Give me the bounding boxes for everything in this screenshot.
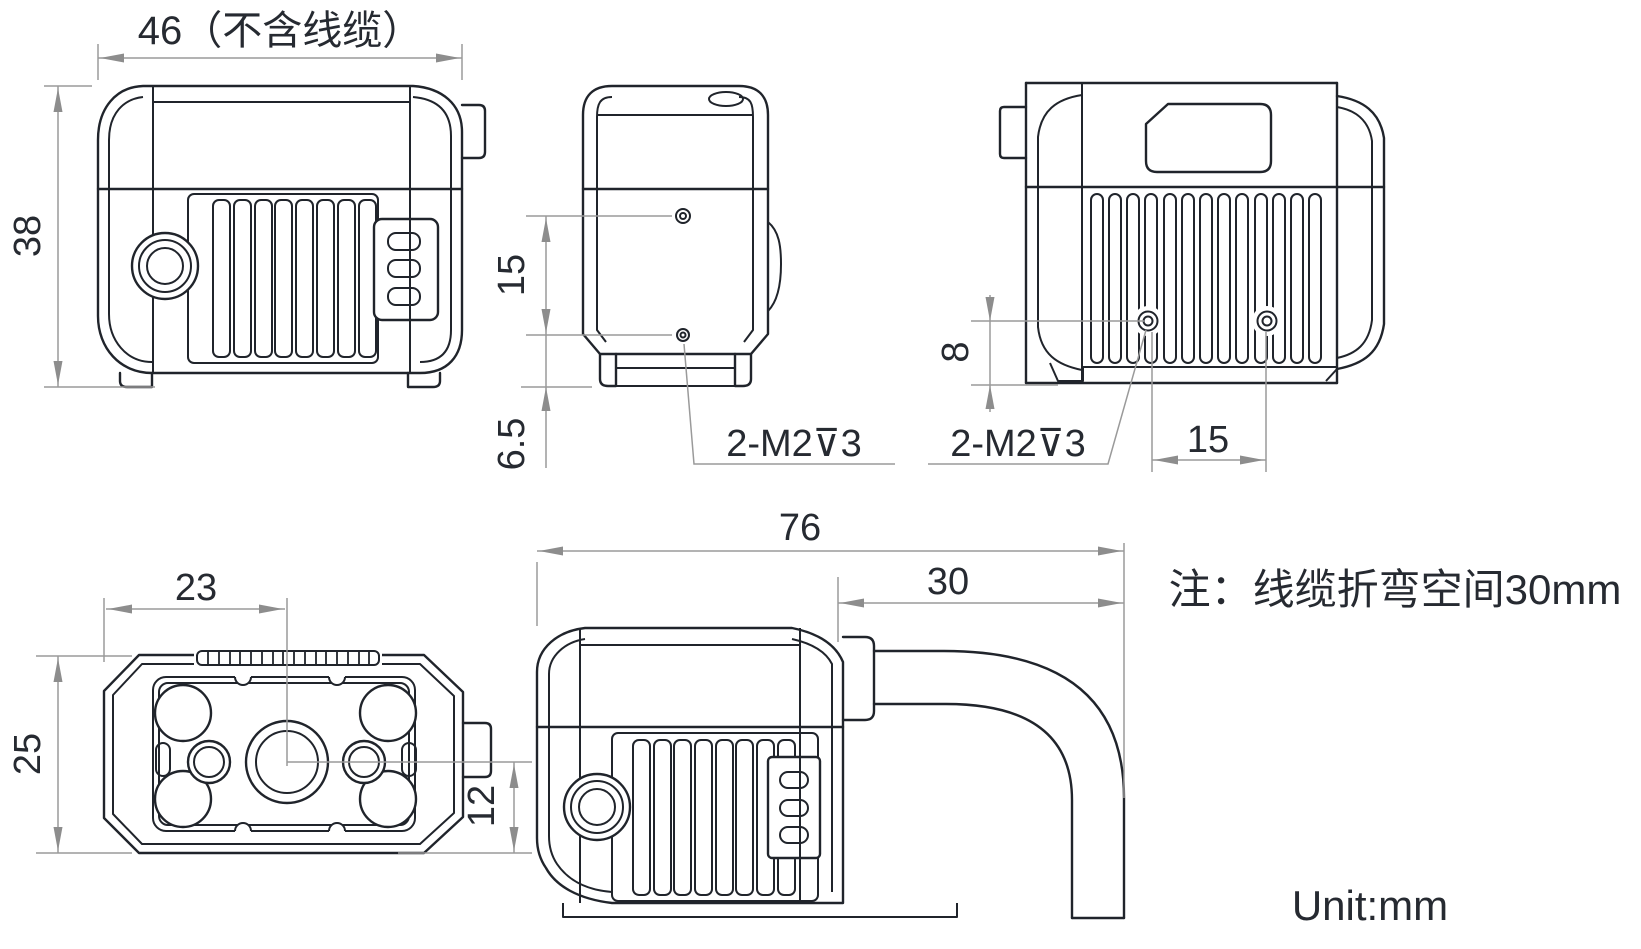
- heatsink-fins: [213, 200, 376, 357]
- dimension-drawing-page: 46（不含线缆） 38 15 6.5 2-M2⊽3 8 2-M2⊽3: [0, 0, 1641, 949]
- foot: [600, 354, 616, 386]
- cable-gland: [843, 637, 874, 720]
- heatsink-block: [188, 194, 378, 363]
- dim-rear-hole-spacing: 15: [1187, 419, 1229, 461]
- dim-height-38: 38: [7, 215, 49, 257]
- heatsink-fins: [1091, 194, 1321, 363]
- thread-callout-side: 2-M2⊽3: [726, 423, 862, 465]
- view-side-profile: [583, 86, 781, 386]
- lens-bulge: [768, 222, 781, 311]
- view-front: [104, 648, 491, 853]
- thread-callout-rear: 2-M2⊽3: [950, 423, 1086, 465]
- foot: [120, 373, 152, 387]
- display-window: [1146, 104, 1271, 172]
- cable-connector-stub: [463, 723, 491, 777]
- cable-inner-edge: [874, 704, 1072, 918]
- dimension-drawing: 46（不含线缆） 38 15 6.5 2-M2⊽3 8 2-M2⊽3: [0, 0, 1641, 949]
- mount-hole: [676, 209, 690, 223]
- view-side-cable: [537, 628, 1124, 918]
- oval-hole: [709, 92, 743, 106]
- view-rear: [1000, 83, 1384, 383]
- lens-barrel-side: [132, 233, 198, 299]
- foot: [408, 373, 440, 387]
- dim-front-lens-center-y: 12: [461, 785, 503, 827]
- base-plate: [563, 903, 957, 917]
- cable-connector-stub: [1000, 107, 1026, 158]
- dim-cable-bend-space: 30: [927, 561, 969, 603]
- dim-side-hole-edge-offset: 6.5: [491, 418, 533, 471]
- cable-outer-edge: [874, 651, 1124, 918]
- dim-rear-hole-bottom-offset: 8: [935, 341, 977, 362]
- base-plate: [616, 368, 735, 386]
- dim-front-lens-center-x: 23: [175, 567, 217, 609]
- shoulder-outline: [1337, 96, 1384, 369]
- dim-side-hole-spacing: 15: [491, 254, 533, 296]
- lens-barrel-side: [564, 774, 630, 840]
- dim-width-excl-cable: 46（不含线缆）: [138, 9, 423, 53]
- foot: [735, 354, 751, 386]
- mount-hole: [677, 329, 689, 341]
- dim-overall-depth: 76: [779, 507, 821, 549]
- note-text: 注：线缆折弯空间30mm: [1169, 566, 1622, 613]
- dim-front-height: 25: [7, 733, 49, 775]
- view-side-left: [98, 86, 485, 387]
- body-outline: [583, 86, 768, 354]
- illumination-led: [360, 685, 416, 741]
- illumination-led: [155, 685, 211, 741]
- cable-connector-stub: [462, 105, 485, 158]
- unit-label: Unit:mm: [1292, 882, 1448, 929]
